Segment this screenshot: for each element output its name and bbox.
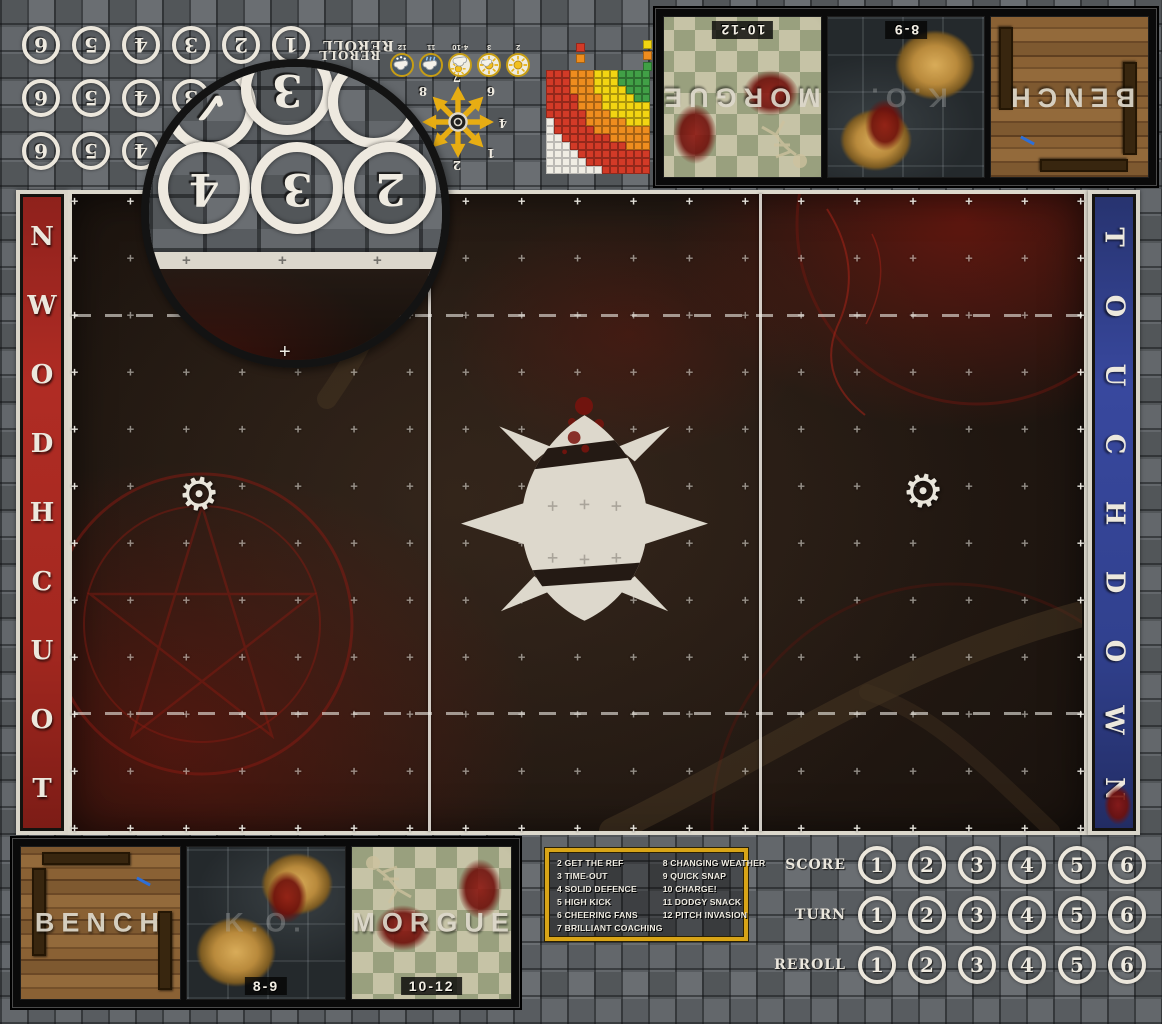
pass-range-cell: [546, 110, 554, 118]
pass-range-cell: [610, 70, 618, 78]
endzone-letter: C: [32, 569, 53, 595]
pass-range-cell: [554, 158, 562, 166]
wide-zone-line-bottom: [74, 712, 1082, 715]
pass-range-cell: [546, 102, 554, 110]
direction-number: 4: [499, 116, 507, 130]
grid-cross: +: [574, 250, 582, 265]
grid-cross: +: [71, 763, 79, 778]
pass-range-cell: [634, 150, 642, 158]
pass-range-cell: [594, 110, 602, 118]
score-circle-number: 6: [34, 86, 48, 110]
pass-range-cell: [618, 110, 626, 118]
pass-range-cell: [586, 166, 594, 174]
grid-cross: +: [71, 535, 79, 550]
pass-range-row: [546, 158, 650, 166]
score-row-turn: TURN123456: [772, 890, 1160, 940]
pass-range-cell: [602, 150, 610, 158]
pass-range-cell: [618, 86, 626, 94]
score-circle: 6: [22, 132, 60, 170]
score-circle-number: 3: [970, 903, 984, 927]
ko-panel: K.O. 8-9: [827, 16, 986, 178]
pass-range-cell: [562, 134, 570, 142]
endzone-letter: H: [1101, 500, 1127, 525]
score-circle: 6: [1108, 846, 1146, 884]
endzone-letter: D: [31, 431, 54, 457]
pass-range-cell: [594, 86, 602, 94]
grid-cross: +: [853, 535, 861, 550]
endzone-left: TOUCHDOWN: [16, 190, 68, 835]
score-circle: 1: [858, 946, 896, 984]
pen-marker: [1020, 135, 1035, 145]
kickoff-table-column-2: 8 CHANGING WEATHER9 QUICK SNAP10 CHARGE!…: [663, 857, 766, 933]
pass-range-cell: [642, 70, 650, 78]
grid-cross: +: [1021, 592, 1029, 607]
score-circle-number: 3: [184, 33, 198, 57]
score-circle-number: 6: [1120, 903, 1134, 927]
grid-cross: +: [1021, 250, 1029, 265]
score-circle-number: 3: [970, 853, 984, 877]
kickoff-entry: 3 TIME-OUT: [557, 870, 663, 883]
pass-range-cell: [570, 166, 578, 174]
grid-cross: +: [797, 478, 805, 493]
grid-cross: +: [686, 193, 694, 208]
pass-range-cell: [602, 158, 610, 166]
grid-cross: +: [71, 421, 79, 436]
grid-cross: +: [742, 364, 750, 379]
magnified-number: 3: [272, 64, 303, 115]
pass-range-cell: [642, 110, 650, 118]
grid-cross: +: [909, 763, 917, 778]
dugout-top: BENCH K.O. 8-9: [655, 8, 1157, 186]
morgue-range-label: 10-12: [711, 21, 773, 39]
pass-range-cell: [610, 166, 618, 174]
pass-range-cell: [610, 150, 618, 158]
pass-range-cell: [546, 126, 554, 134]
pass-range-cell: [562, 94, 570, 102]
score-circle: 2: [908, 896, 946, 934]
pass-range-cell: [586, 86, 594, 94]
pass-range-row: [546, 126, 650, 134]
score-circle: 5: [72, 26, 110, 64]
grid-cross: +: [238, 364, 246, 379]
score-circle-number: 4: [1020, 953, 1034, 977]
kickoff-entry: 11 DODGY SNACK: [663, 896, 766, 909]
magnified-pitch: +: [149, 269, 442, 360]
grid-cross: +: [238, 763, 246, 778]
magnified-number: 3: [282, 163, 313, 214]
grid-cross: +: [462, 763, 470, 778]
pass-range-cell: [610, 94, 618, 102]
pass-range-cell: [602, 86, 610, 94]
grid-cross: +: [406, 535, 414, 550]
pass-range-cell: [578, 102, 586, 110]
pass-range-cell: [610, 110, 618, 118]
pass-range-cell: [562, 158, 570, 166]
grid-cross: +: [406, 364, 414, 379]
grid-cross: +: [1077, 421, 1085, 436]
score-row-reroll: REROLL123456: [772, 940, 1160, 990]
pass-range-cell: [562, 126, 570, 134]
pen-marker: [136, 877, 151, 887]
pass-range-row: [546, 150, 650, 158]
pass-range-chart: [546, 40, 658, 176]
grid-cross: +: [686, 364, 694, 379]
grid-cross: +: [183, 421, 191, 436]
pass-range-cell: [586, 134, 594, 142]
pass-range-cell: [570, 110, 578, 118]
grid-cross: +: [1077, 478, 1085, 493]
grid-cross: +: [71, 250, 79, 265]
pass-range-cell: [626, 110, 634, 118]
pass-range-grid: [546, 70, 650, 174]
dugout-bottom: BENCH K.O. 8-9: [12, 838, 520, 1008]
grid-cross: +: [350, 820, 358, 835]
score-circle: 1: [858, 896, 896, 934]
score-row-label: SCORE: [772, 857, 846, 873]
score-circle-number: 2: [920, 853, 934, 877]
grid-cross: +: [183, 535, 191, 550]
pass-range-cell: [562, 102, 570, 110]
grid-cross: +: [1021, 763, 1029, 778]
grid-cross: +: [742, 193, 750, 208]
pass-range-cell: [562, 166, 570, 174]
grid-cross: +: [406, 763, 414, 778]
direction-number: 2: [453, 158, 461, 172]
endzone-letter: W: [27, 293, 56, 319]
pass-range-cell: [594, 70, 602, 78]
grid-cross: +: [797, 649, 805, 664]
magnified-circle-check: ✓: [164, 60, 256, 152]
grid-cross: +: [518, 364, 526, 379]
grid-cross: +: [1021, 535, 1029, 550]
grid-cross: +: [406, 478, 414, 493]
grid-cross: +: [1077, 820, 1085, 835]
grid-cross: +: [574, 763, 582, 778]
grid-cross: +: [965, 250, 973, 265]
pass-range-row: [546, 166, 650, 174]
score-circle: 6: [22, 26, 60, 64]
pass-range-cell: [618, 94, 626, 102]
grid-cross: +: [853, 364, 861, 379]
score-circle: 4: [1008, 846, 1046, 884]
pass-range-cell: [562, 150, 570, 158]
pass-range-cell: [626, 94, 634, 102]
grid-cross: +: [127, 592, 135, 607]
pass-range-cell: [634, 78, 642, 86]
pass-range-row: [546, 102, 650, 110]
grid-cross: +: [574, 193, 582, 208]
pass-range-legend-cell: [643, 40, 652, 49]
score-circle-number: 5: [84, 33, 98, 57]
grid-cross: +: [71, 364, 79, 379]
endzone-right-label: TOUCHDOWN: [1092, 202, 1136, 823]
grid-cross: +: [1077, 250, 1085, 265]
ko-label: K.O.: [187, 908, 346, 939]
pass-range-cell: [586, 118, 594, 126]
pass-range-cell: [602, 126, 610, 134]
grid-cross: +: [909, 193, 917, 208]
score-circle-number: 2: [920, 903, 934, 927]
pass-range-cell: [642, 134, 650, 142]
grid-cross: +: [294, 763, 302, 778]
grid-cross: +: [965, 763, 973, 778]
grid-cross: +: [1021, 193, 1029, 208]
grid-cross: +: [630, 763, 638, 778]
pass-range-row: [546, 118, 650, 126]
pass-range-cell: [554, 134, 562, 142]
pass-range-cell: [562, 142, 570, 150]
kickoff-entry: 6 CHEERING FANS: [557, 909, 663, 922]
score-circle: 5: [1058, 896, 1096, 934]
pass-range-cell: [554, 70, 562, 78]
grid-cross: +: [350, 421, 358, 436]
pass-range-cell: [610, 158, 618, 166]
pass-range-row: [546, 134, 650, 142]
score-circle-number: 4: [1020, 853, 1034, 877]
ko-range-label: 8-9: [245, 977, 287, 995]
pass-range-cell: [626, 86, 634, 94]
pass-range-cell: [554, 110, 562, 118]
weather-reroll-label: REROLL: [318, 48, 380, 62]
grid-cross: +: [853, 763, 861, 778]
pass-range-cell: [626, 102, 634, 110]
grid-cross: +: [1077, 763, 1085, 778]
score-circle: 2: [908, 846, 946, 884]
pass-range-cell: [554, 94, 562, 102]
kickoff-entry: 12 PITCH INVASION: [663, 909, 766, 922]
pass-range-cell: [634, 86, 642, 94]
kickoff-table-column-1: 2 GET THE REF3 TIME-OUT4 SOLID DEFENCE5 …: [557, 857, 663, 933]
pass-range-cell: [602, 102, 610, 110]
pass-range-cell: [610, 86, 618, 94]
endzone-letter: D: [1101, 570, 1127, 593]
pass-range-cell: [594, 118, 602, 126]
score-circle: 3: [958, 946, 996, 984]
score-circle-number: 6: [34, 139, 48, 163]
weather-item: 4-10: [448, 43, 472, 77]
pass-range-cell: [546, 94, 554, 102]
grid-cross: +: [853, 820, 861, 835]
grid-cross: +: [574, 364, 582, 379]
pass-range-cell: [578, 70, 586, 78]
score-circle: 6: [1108, 896, 1146, 934]
pass-range-row: [546, 70, 650, 78]
grid-cross: +: [294, 820, 302, 835]
endzone-letter: H: [30, 500, 55, 526]
grid-cross: +: [853, 649, 861, 664]
pass-range-cell: [602, 94, 610, 102]
blood-bowl-game-mat: SCORE123456TURN123456REROLL123456 123456…: [0, 0, 1162, 1024]
grid-cross: +: [1077, 592, 1085, 607]
pass-range-cell: [618, 78, 626, 86]
magnified-circle: 2: [344, 142, 436, 234]
pass-range-cell: [546, 150, 554, 158]
score-circle-number: 1: [284, 33, 298, 57]
grid-cross: +: [183, 364, 191, 379]
endzone-letter: O: [1101, 639, 1127, 662]
pass-range-cell: [634, 70, 642, 78]
grid-cross: +: [1021, 478, 1029, 493]
kickoff-entry: 2 GET THE REF: [557, 857, 663, 870]
score-row-score: SCORE123456: [772, 840, 1160, 890]
weather-range-label: 2: [506, 43, 530, 52]
grid-cross: +: [1021, 364, 1029, 379]
pass-range-cell: [546, 78, 554, 86]
skeleton-decoration: [359, 853, 425, 909]
pass-range-cell: [642, 158, 650, 166]
grid-cross: +: [686, 763, 694, 778]
pass-range-row: [546, 78, 650, 86]
pass-range-cell: [602, 78, 610, 86]
pass-range-cell: [602, 70, 610, 78]
grid-cross: +: [406, 421, 414, 436]
kickoff-entry: 10 CHARGE!: [663, 883, 766, 896]
pass-range-legend-cell: [576, 43, 585, 52]
grid-cross: +: [797, 592, 805, 607]
pass-range-cell: [554, 142, 562, 150]
morgue-label: MORGUE: [352, 908, 511, 939]
grid-cross: +: [797, 364, 805, 379]
pass-range-cell: [578, 86, 586, 94]
grid-cross: +: [797, 193, 805, 208]
grid-cross: +: [462, 193, 470, 208]
pass-range-cell: [602, 134, 610, 142]
pass-range-cell: [578, 126, 586, 134]
pass-range-cell: [554, 102, 562, 110]
endzone-letter: O: [1101, 294, 1127, 317]
score-circle: 5: [1058, 846, 1096, 884]
pass-range-cell: [626, 126, 634, 134]
grid-cross: +: [127, 364, 135, 379]
endzone-letter: O: [31, 707, 54, 733]
score-row-label: REROLL: [772, 957, 846, 973]
pass-range-cell: [626, 70, 634, 78]
pass-range-cell: [578, 118, 586, 126]
pass-range-cell: [586, 142, 594, 150]
pass-range-cell: [634, 118, 642, 126]
grid-cross: +: [1021, 649, 1029, 664]
pass-range-cell: [626, 78, 634, 86]
grid-cross: +: [742, 478, 750, 493]
endzone-letter: N: [30, 224, 54, 250]
pass-range-cell: [546, 158, 554, 166]
grid-cross: +: [686, 820, 694, 835]
pass-range-cell: [586, 110, 594, 118]
bench-label: BENCH: [21, 908, 180, 939]
grid-cross: +: [965, 820, 973, 835]
grid-cross: +: [238, 478, 246, 493]
pass-range-cell: [578, 150, 586, 158]
grid-cross: +: [183, 763, 191, 778]
pass-range-cell: [634, 110, 642, 118]
pass-range-cell: [602, 142, 610, 150]
pass-range-cell: [594, 150, 602, 158]
pass-range-cell: [554, 86, 562, 94]
pass-range-row: [546, 86, 650, 94]
pass-range-cell: [642, 118, 650, 126]
pass-range-cell: [570, 70, 578, 78]
pass-range-cell: [610, 134, 618, 142]
pass-range-cell: [546, 134, 554, 142]
pass-range-cell: [570, 78, 578, 86]
grid-cross: +: [742, 421, 750, 436]
direction-number: 6: [487, 84, 495, 98]
pass-range-cell: [602, 110, 610, 118]
pass-range-cell: [546, 142, 554, 150]
score-circle: 3: [958, 896, 996, 934]
grid-cross: +: [350, 478, 358, 493]
grid-cross: +: [742, 250, 750, 265]
grid-cross: +: [853, 250, 861, 265]
pass-range-cell: [554, 118, 562, 126]
bench-rail: [1040, 159, 1128, 172]
grid-cross: +: [742, 820, 750, 835]
spiked-ball-emblem: [457, 382, 712, 654]
grid-cross: +: [518, 250, 526, 265]
third-line-right: [759, 194, 762, 831]
grid-cross: +: [127, 193, 135, 208]
magnified-circle: 3: [251, 142, 343, 234]
grid-cross: +: [183, 820, 191, 835]
morgue-label: MORGUE: [664, 82, 821, 113]
morgue-range-label: 10-12: [401, 977, 463, 995]
pass-range-cell: [618, 102, 626, 110]
score-circle: 4: [1008, 946, 1046, 984]
grid-cross: +: [127, 478, 135, 493]
grid-cross: +: [294, 535, 302, 550]
grid-cross: +: [350, 535, 358, 550]
grid-cross: +: [462, 250, 470, 265]
endzone-left-label: TOUCHDOWN: [20, 202, 64, 823]
pass-range-cell: [610, 118, 618, 126]
pass-range-cell: [634, 94, 642, 102]
grid-cross: +: [630, 364, 638, 379]
pass-range-cell: [578, 142, 586, 150]
kickoff-entry: 8 CHANGING WEATHER: [663, 857, 766, 870]
pass-range-cell: [618, 158, 626, 166]
grid-cross: +: [238, 820, 246, 835]
pass-range-cell: [578, 158, 586, 166]
pass-range-cell: [634, 126, 642, 134]
pass-range-cell: [594, 102, 602, 110]
pass-range-row: [546, 110, 650, 118]
grid-cross: +: [1077, 364, 1085, 379]
grid-cross: +: [406, 820, 414, 835]
weather-range-label: 4-10: [448, 43, 472, 52]
pass-range-cell: [642, 102, 650, 110]
endzone-letter: U: [31, 638, 54, 664]
direction-number: 1: [487, 146, 495, 160]
pass-range-cell: [570, 150, 578, 158]
grid-cross: +: [406, 592, 414, 607]
score-circle-number: 6: [1120, 853, 1134, 877]
sun-behind-cloud-icon: [448, 53, 472, 77]
pass-range-cell: [554, 126, 562, 134]
grid-cross: +: [853, 592, 861, 607]
bench-rail: [42, 852, 131, 865]
pass-range-legend-cell: [643, 62, 652, 71]
pass-range-legend-right: [643, 40, 652, 71]
ko-range-label: 8-9: [885, 21, 927, 39]
ko-panel: K.O. 8-9: [186, 846, 347, 1000]
pass-range-cell: [570, 118, 578, 126]
score-circle: 4: [122, 26, 160, 64]
pass-range-cell: [626, 134, 634, 142]
score-circle-number: 4: [134, 33, 148, 57]
pass-range-cell: [634, 158, 642, 166]
pass-range-cell: [634, 166, 642, 174]
grid-cross: +: [518, 820, 526, 835]
